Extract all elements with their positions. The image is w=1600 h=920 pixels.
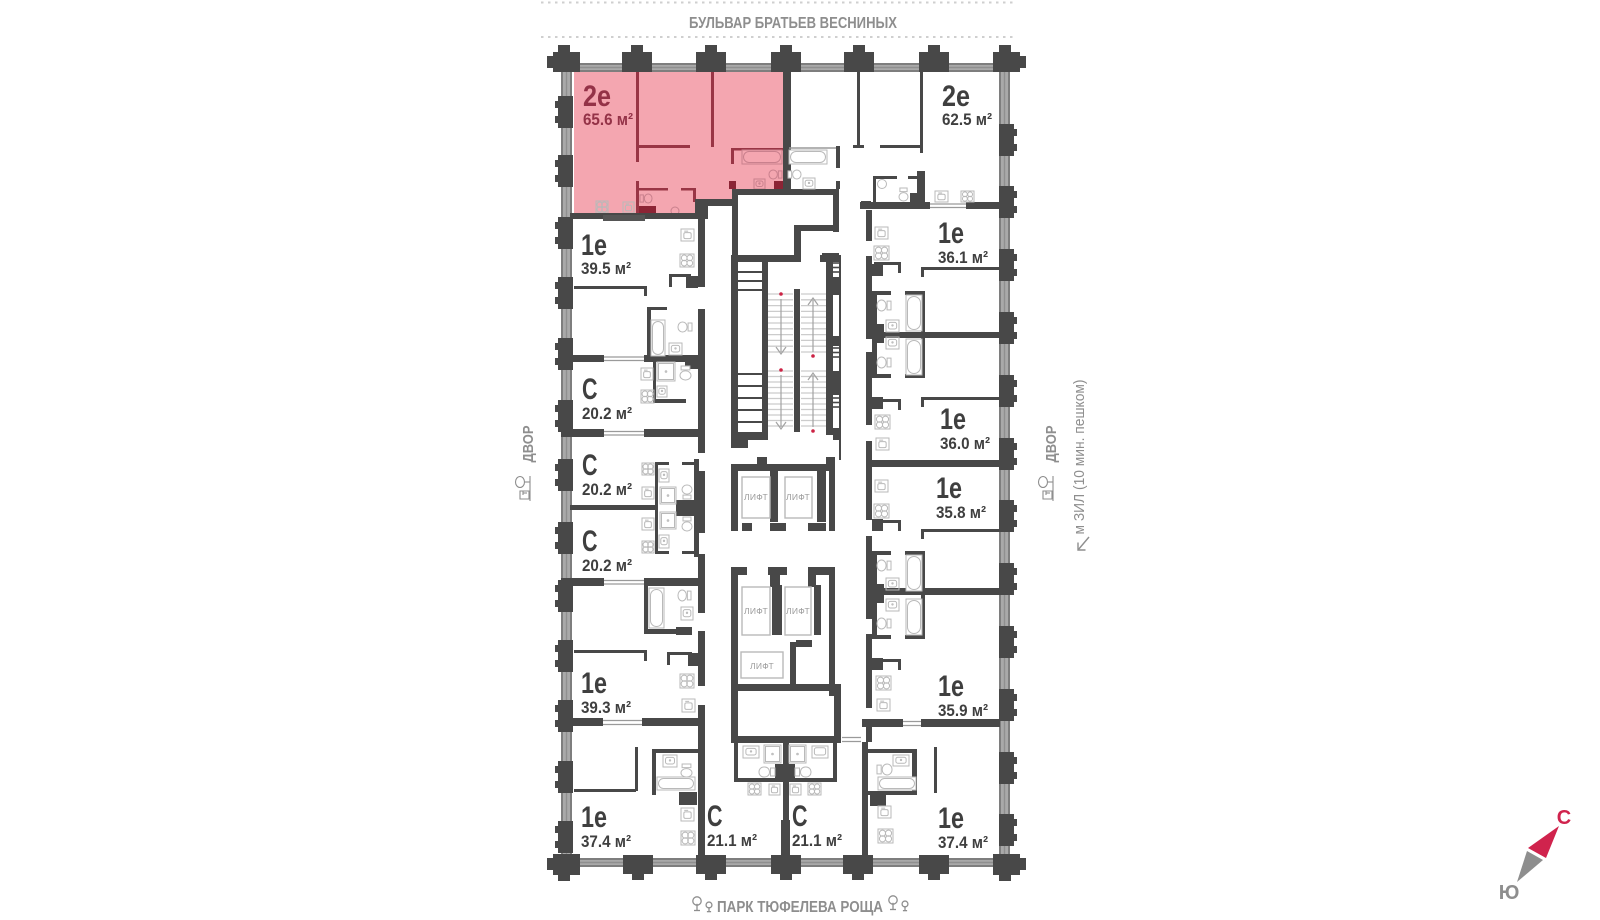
svg-text:21.1 м²: 21.1 м²	[792, 832, 842, 850]
svg-text:1е: 1е	[938, 217, 964, 250]
svg-text:С: С	[582, 525, 598, 558]
svg-text:37.4 м²: 37.4 м²	[581, 833, 631, 851]
svg-text:Ю: Ю	[1499, 882, 1520, 904]
svg-text:35.9 м²: 35.9 м²	[938, 702, 988, 720]
svg-text:ПАРК ТЮФЕЛЕВА РОЩА: ПАРК ТЮФЕЛЕВА РОЩА	[717, 899, 883, 916]
svg-text:1е: 1е	[581, 229, 607, 262]
svg-text:С: С	[582, 373, 598, 406]
svg-text:БУЛЬВАР БРАТЬЕВ ВЕСНИНЫХ: БУЛЬВАР БРАТЬЕВ ВЕСНИНЫХ	[689, 15, 897, 32]
svg-text:С: С	[707, 800, 723, 833]
svg-text:1е: 1е	[940, 403, 966, 436]
svg-text:С: С	[792, 800, 808, 833]
svg-text:37.4 м²: 37.4 м²	[938, 834, 988, 852]
svg-text:65.6 м²: 65.6 м²	[583, 111, 633, 129]
svg-text:1е: 1е	[938, 670, 964, 703]
svg-text:1е: 1е	[936, 472, 962, 505]
svg-text:36.1 м²: 36.1 м²	[938, 249, 988, 267]
svg-text:ДВОР: ДВОР	[520, 426, 537, 463]
svg-text:ЛИФТ: ЛИФТ	[744, 492, 768, 502]
svg-text:35.8 м²: 35.8 м²	[936, 504, 986, 522]
svg-text:ЛИФТ: ЛИФТ	[786, 492, 810, 502]
svg-text:36.0 м²: 36.0 м²	[940, 435, 990, 453]
svg-text:1е: 1е	[581, 801, 607, 834]
svg-text:ЛИФТ: ЛИФТ	[786, 606, 810, 616]
svg-text:21.1 м²: 21.1 м²	[707, 832, 757, 850]
svg-text:1е: 1е	[938, 802, 964, 835]
svg-text:20.2 м²: 20.2 м²	[582, 481, 632, 499]
svg-text:62.5 м²: 62.5 м²	[942, 111, 992, 129]
svg-text:С: С	[1557, 807, 1571, 829]
svg-text:2е: 2е	[942, 80, 970, 113]
svg-text:С: С	[582, 449, 598, 482]
svg-text:ЛИФТ: ЛИФТ	[744, 606, 768, 616]
svg-text:20.2 м²: 20.2 м²	[582, 405, 632, 423]
svg-text:39.3 м²: 39.3 м²	[581, 699, 631, 717]
svg-text:м ЗИЛ (10 мин. пешком): м ЗИЛ (10 мин. пешком)	[1072, 380, 1088, 535]
svg-text:ДВОР: ДВОР	[1043, 426, 1060, 463]
svg-text:39.5 м²: 39.5 м²	[581, 260, 631, 278]
svg-text:1е: 1е	[581, 667, 607, 700]
svg-text:ЛИФТ: ЛИФТ	[750, 661, 774, 671]
svg-text:2е: 2е	[583, 80, 611, 113]
svg-text:20.2 м²: 20.2 м²	[582, 557, 632, 575]
